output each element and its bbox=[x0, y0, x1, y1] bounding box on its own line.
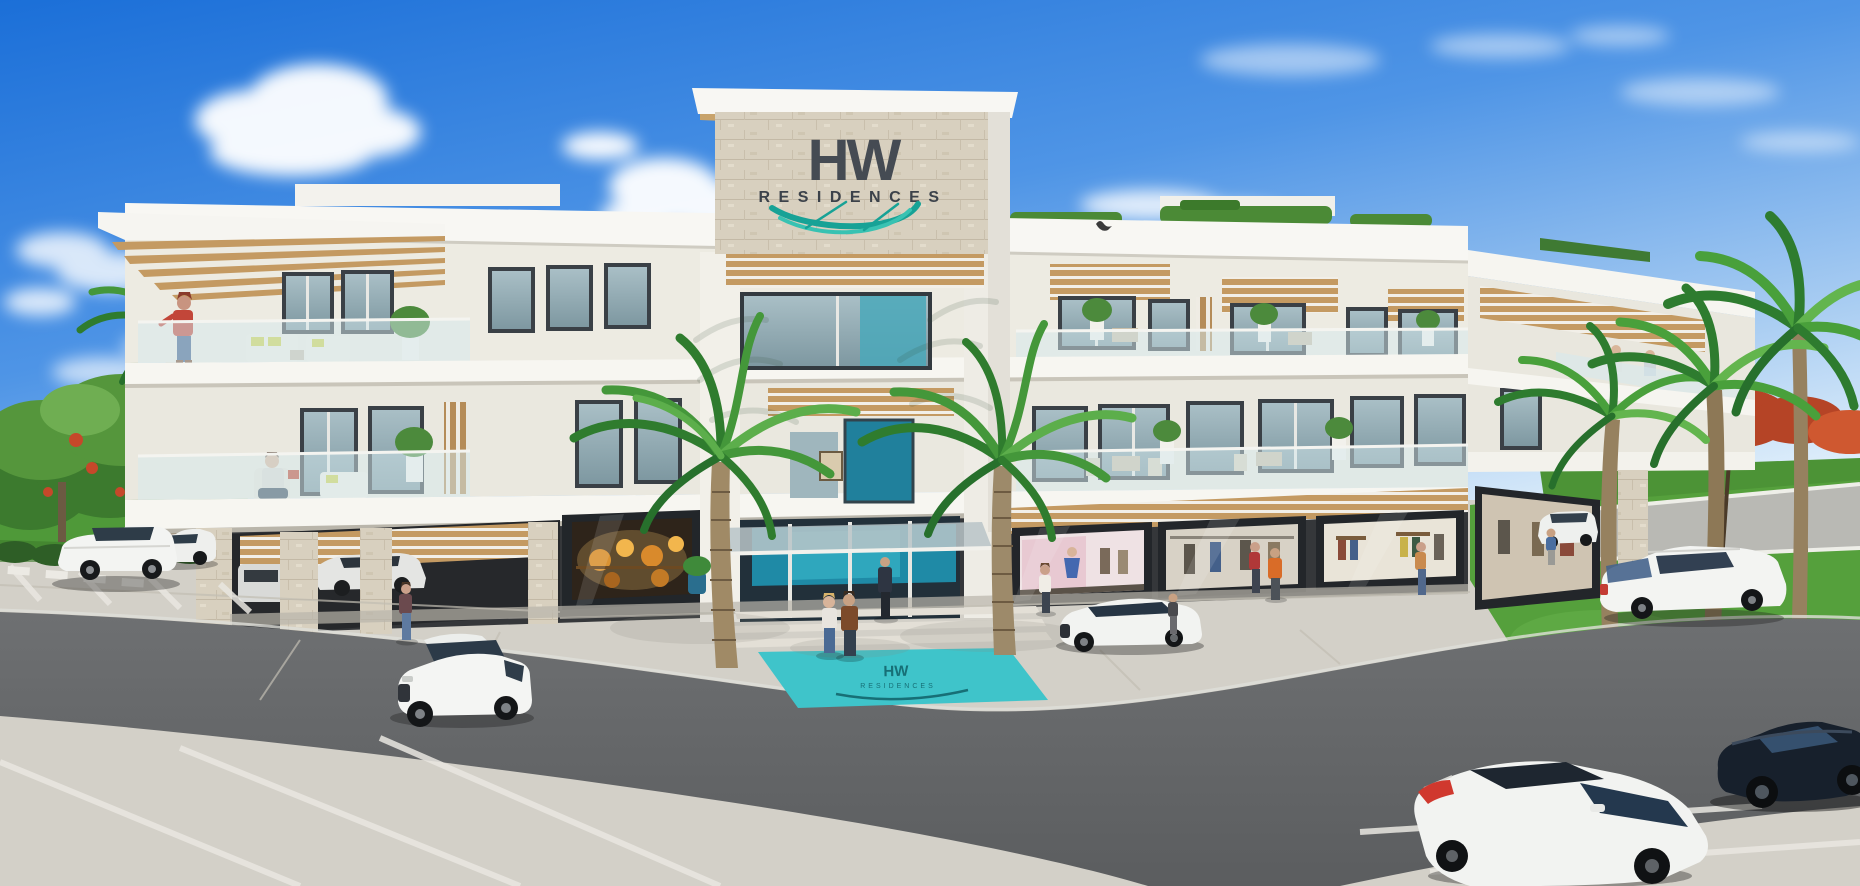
scene-rendering: HW RESIDENCES bbox=[0, 0, 1860, 886]
floor2-railing-left bbox=[138, 319, 470, 366]
roof-setback-left bbox=[295, 184, 560, 206]
entrance-mat: HW RESIDENCES bbox=[758, 648, 1048, 708]
mat-logo-text: HW bbox=[883, 663, 909, 680]
slat-box bbox=[1050, 264, 1170, 300]
mat-name-text: RESIDENCES bbox=[860, 683, 936, 690]
tower-slat-band bbox=[726, 254, 984, 288]
sign-logo-text: HW bbox=[808, 128, 902, 193]
rendering-canvas: HW RESIDENCES bbox=[0, 0, 1860, 886]
tower-teal-curtain bbox=[860, 296, 926, 366]
